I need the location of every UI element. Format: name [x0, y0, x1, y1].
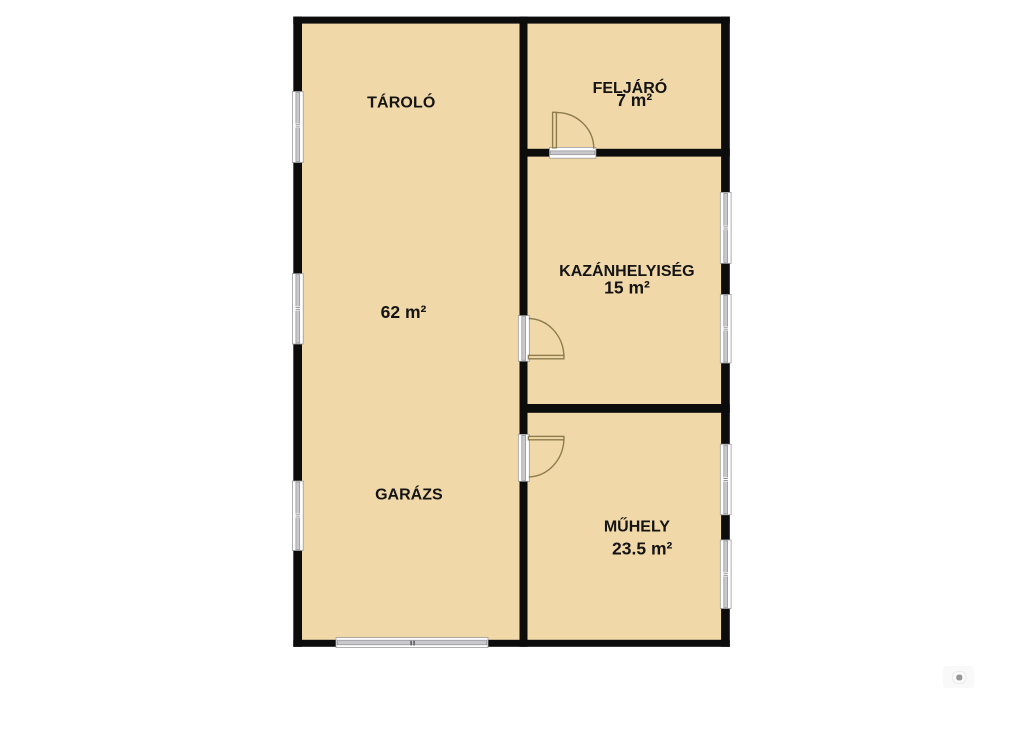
svg-text:7 m²: 7 m² — [616, 90, 652, 110]
svg-text:TÁROLÓ: TÁROLÓ — [367, 93, 435, 112]
svg-text:23.5 m²: 23.5 m² — [612, 539, 672, 559]
svg-text:GARÁZS: GARÁZS — [375, 485, 443, 504]
svg-text:MŰHELY: MŰHELY — [604, 517, 670, 536]
svg-text:15 m²: 15 m² — [604, 278, 650, 298]
svg-text:62 m²: 62 m² — [381, 302, 427, 322]
